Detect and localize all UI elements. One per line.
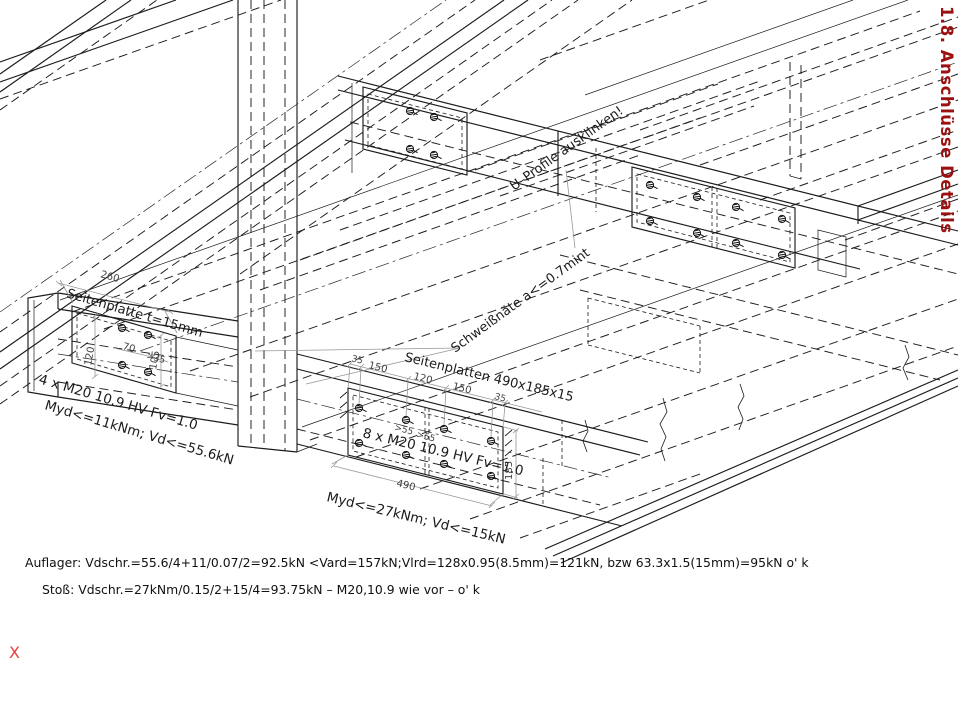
auflager-calc-line: Auflager: Vdschr.=55.6/4+11/0.07/2=92.5k…	[25, 555, 809, 570]
bolt-icon	[646, 181, 657, 188]
break-marks	[583, 345, 909, 461]
bolt-icon	[693, 229, 704, 236]
dim-chain-35b: 35	[493, 392, 507, 404]
bolt-icon	[778, 215, 789, 222]
bolt-icon	[440, 425, 451, 432]
bolt-icon	[355, 404, 366, 411]
bolt-icon	[693, 193, 704, 200]
bolt-icon	[406, 107, 417, 114]
bolt-icon	[144, 331, 155, 338]
weld-note: Schweißnäte a<=0.7mint	[449, 246, 593, 357]
splice-bolts-label: 8 x M20 10.9 HV Fv=1.0	[361, 425, 525, 479]
drawing-canvas[interactable]: Seitenplatte t=15mm 4 x M20 10.9 HV Fv=1…	[0, 0, 960, 720]
bolt-icon	[406, 145, 417, 152]
sheet-title: 1.8. Anschlüsse Details	[937, 6, 956, 234]
bolt-icon	[732, 203, 743, 210]
bolt-icon	[402, 416, 413, 423]
back-beam	[338, 62, 958, 277]
drawing-sheet: Seitenplatte t=15mm 4 x M20 10.9 HV Fv=1…	[0, 0, 960, 720]
dim-chain-150a: 150	[367, 360, 388, 375]
dim-185: 185	[504, 461, 515, 480]
bolt-icon	[646, 217, 657, 224]
bolt-icon	[487, 437, 498, 444]
dim-70: 70	[121, 341, 136, 355]
cursor-marker: X	[9, 643, 20, 662]
dim-490: 490	[395, 478, 416, 493]
bolt-icon	[732, 239, 743, 246]
purlin-lines	[0, 0, 958, 563]
splice-capacity-label: Myd<=27kNm; Vd<=15kN	[325, 489, 507, 547]
bolt-icon	[118, 324, 129, 331]
bolt-icon	[430, 151, 441, 158]
stoss-calc-line: Stoß: Vdschr.=27kNm/0.15/2+15/4=93.75kN …	[42, 582, 481, 597]
bolt-icon	[430, 113, 441, 120]
dim-260: 260	[99, 269, 120, 285]
dim-105: 105	[148, 350, 162, 371]
column	[238, 0, 317, 452]
